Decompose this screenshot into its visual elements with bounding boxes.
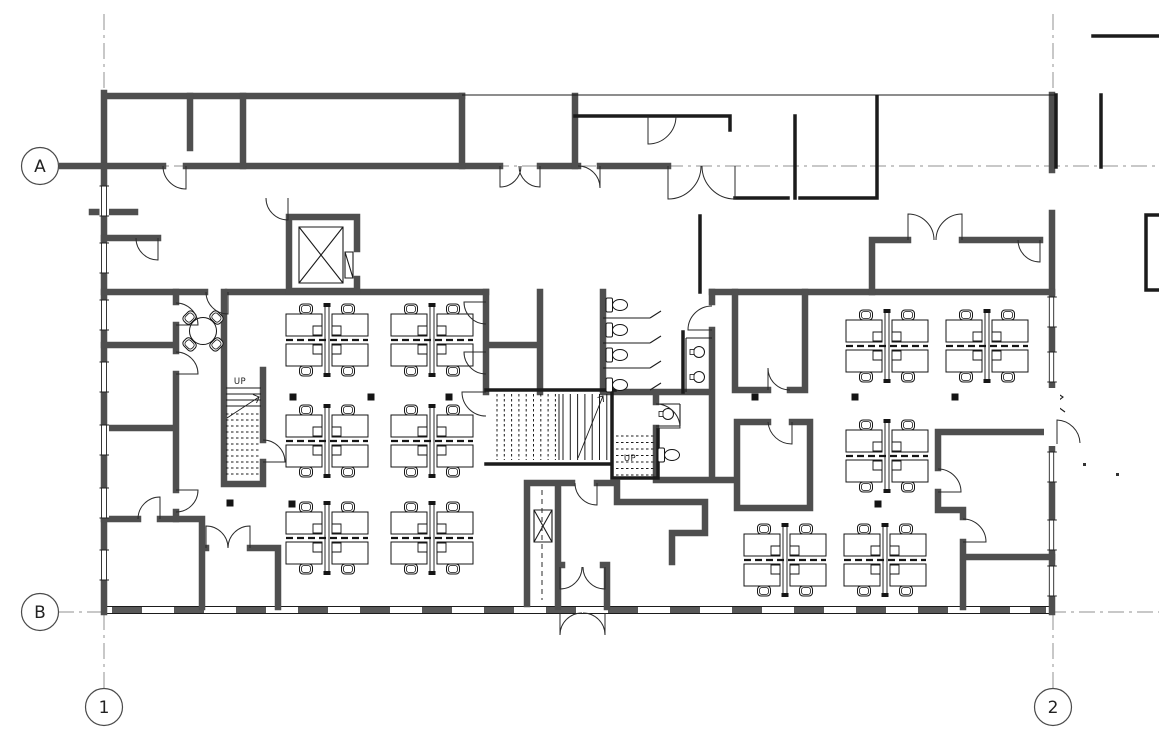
core-stair-up-label: UP — [624, 454, 636, 464]
workstation-pod — [846, 419, 928, 493]
workstation-pod — [844, 523, 926, 597]
west-office-walls — [104, 292, 176, 519]
southwest-room-walls — [104, 519, 278, 607]
workstation-pod — [286, 404, 368, 478]
workstation-pod — [391, 404, 473, 478]
workstation-pod — [286, 501, 368, 575]
workstation-pod — [744, 523, 826, 597]
adjacent-structure-stubs — [1056, 36, 1159, 290]
floor-plan-canvas: UP UP — [0, 0, 1159, 738]
grid-bubble-2: 2 — [1035, 689, 1072, 726]
grid-label-a: A — [34, 157, 46, 177]
curtain-wall — [104, 607, 1052, 614]
stall-doors — [650, 311, 661, 390]
workstation-pod — [846, 309, 928, 383]
grid-bubble-1: 1 — [86, 689, 123, 726]
utility-fixture — [534, 510, 552, 542]
west-stair-up-label: UP — [234, 377, 246, 387]
workstation-pod — [391, 501, 473, 575]
grid-label-1: 1 — [99, 698, 110, 718]
east-office-walls — [735, 292, 810, 508]
south-center-room-walls — [527, 483, 705, 607]
west-stair: UP — [226, 377, 261, 474]
elevator-cab — [299, 227, 353, 283]
north-east-block — [575, 97, 877, 292]
meeting-table — [181, 309, 224, 352]
thin-lines — [462, 95, 1065, 542]
floor-plan-drawing: UP UP — [0, 0, 1159, 738]
sink — [690, 372, 705, 383]
workstation-pod — [391, 303, 473, 377]
southeast-room-walls — [938, 432, 1052, 607]
sink — [690, 347, 705, 358]
workstation-pod — [946, 309, 1028, 383]
grid-label-2: 2 — [1048, 698, 1059, 718]
grid-bubble-a: A — [22, 148, 59, 185]
grid-label-b: B — [34, 603, 46, 623]
grid-bubble-b: B — [22, 594, 59, 631]
workstation-pod — [286, 303, 368, 377]
northeast-room-walls — [872, 240, 1040, 292]
